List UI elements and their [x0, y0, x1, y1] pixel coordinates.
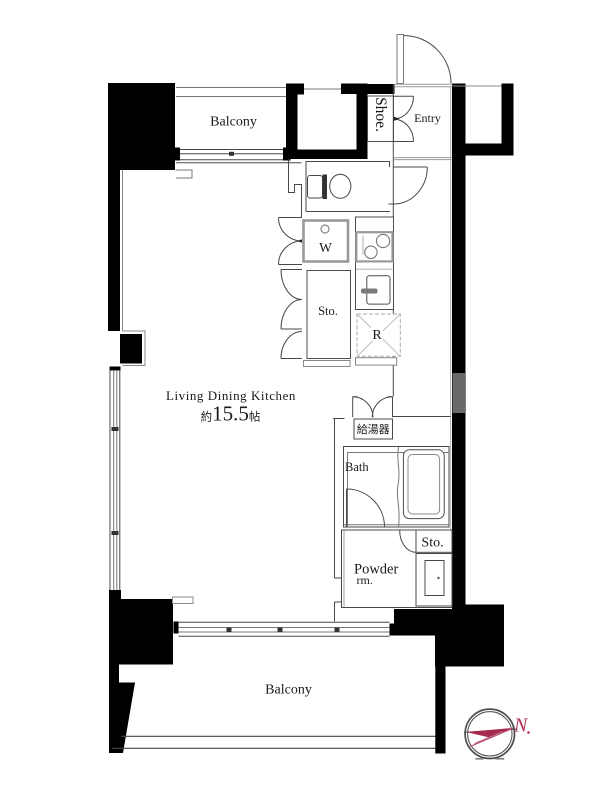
svg-text:Balcony: Balcony: [210, 115, 257, 130]
svg-text:Sto.: Sto.: [318, 304, 338, 318]
svg-text:R: R: [372, 328, 382, 343]
svg-text:Entry: Entry: [414, 111, 441, 125]
svg-text:Bath: Bath: [345, 460, 369, 474]
svg-text:Balcony: Balcony: [265, 683, 312, 698]
svg-text:N: N: [513, 715, 529, 737]
svg-text:Shoe.: Shoe.: [372, 97, 389, 132]
svg-text:rm.: rm.: [357, 573, 373, 587]
svg-text:給湯器: 給湯器: [357, 422, 390, 436]
svg-text:約15.5帖: 約15.5帖: [201, 402, 261, 426]
svg-text:Sto.: Sto.: [421, 536, 443, 551]
svg-text:W: W: [319, 240, 332, 255]
